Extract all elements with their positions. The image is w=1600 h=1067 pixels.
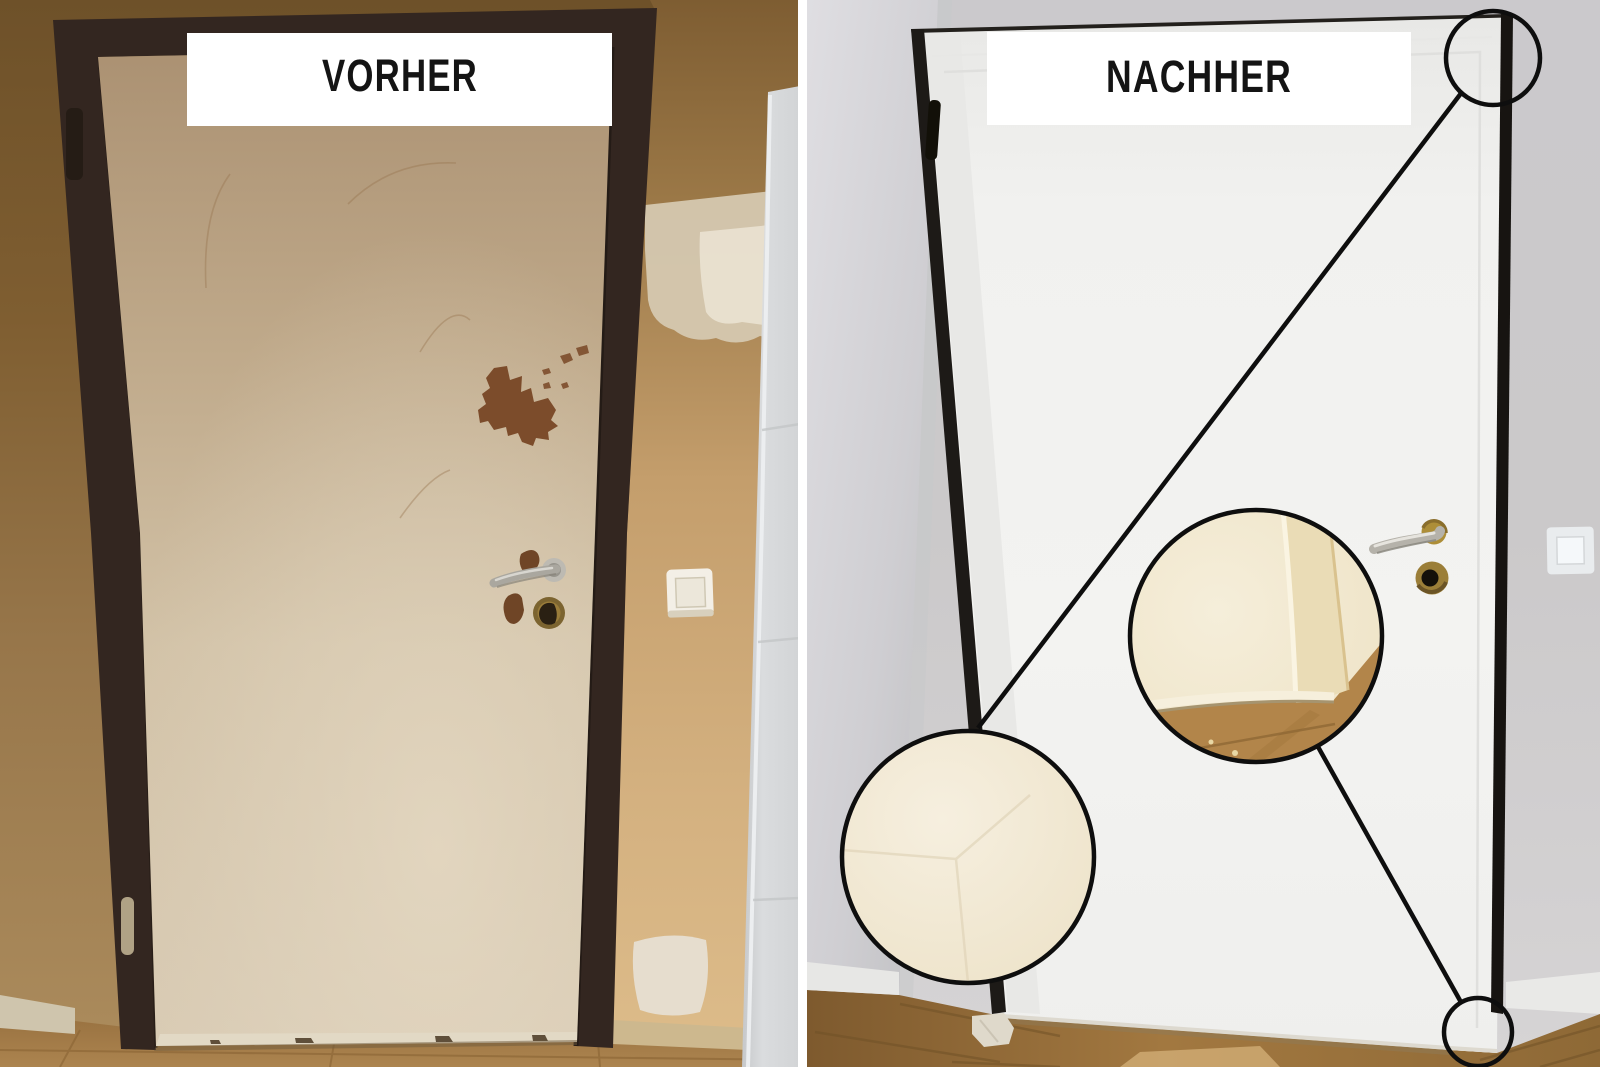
svg-text:NACHHER: NACHHER [1106,51,1292,102]
svg-text:VORHER: VORHER [322,50,478,101]
